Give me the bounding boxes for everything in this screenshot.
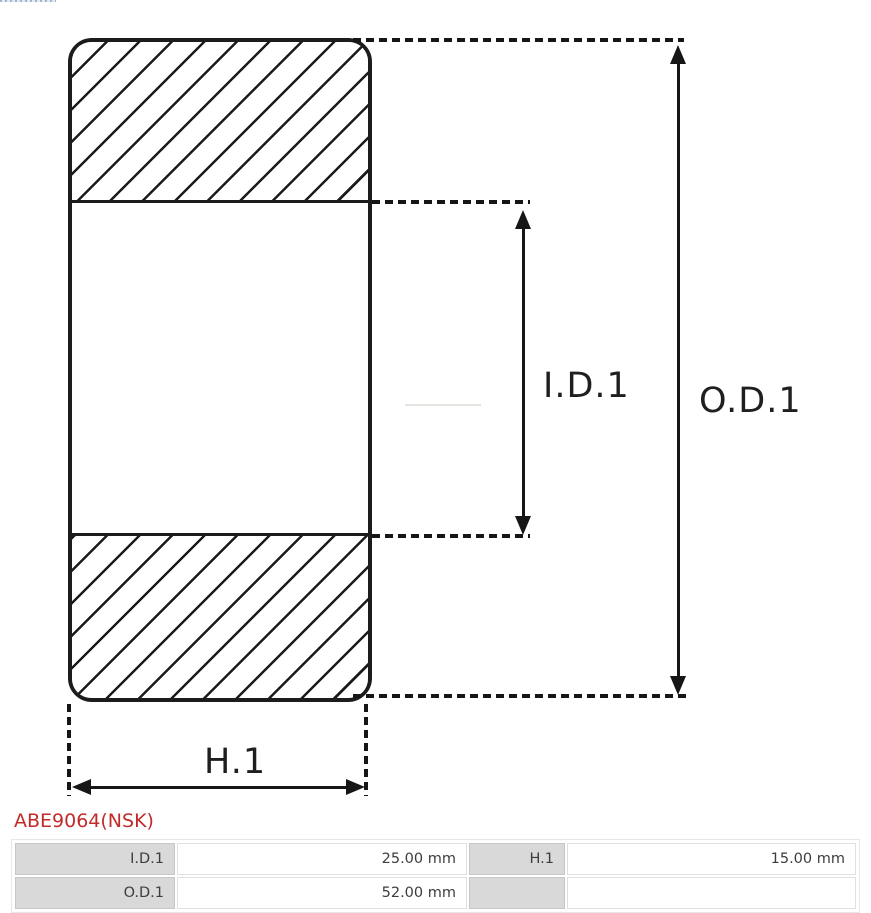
arrowhead-right-icon	[346, 779, 365, 795]
spec-label-id: I.D.1	[15, 843, 175, 875]
width-label: H.1	[204, 745, 266, 780]
arrow-shaft	[522, 226, 525, 519]
hatched-ring-section-bottom	[72, 533, 368, 698]
spec-value-h: 15.00 mm	[567, 843, 856, 875]
arrowhead-down-icon	[670, 676, 686, 695]
spec-table-container: I.D.1 25.00 mm H.1 15.00 mm O.D.1 52.00 …	[11, 839, 860, 913]
extension-line-id-bottom	[372, 534, 530, 538]
arrow-shaft	[677, 61, 680, 679]
extension-line-id-top	[372, 200, 530, 204]
dimension-arrow-outer-diameter	[670, 45, 687, 695]
extension-line-h-left	[67, 704, 71, 796]
arrow-shaft	[88, 786, 349, 789]
spec-value-empty	[567, 877, 856, 909]
part-code-link[interactable]: ABE9064(NSK)	[14, 811, 154, 832]
bearing-cross-section-drawing	[68, 38, 372, 702]
spec-label-od: O.D.1	[15, 877, 175, 909]
table-row: I.D.1 25.00 mm H.1 15.00 mm	[15, 843, 856, 875]
spec-value-od: 52.00 mm	[177, 877, 467, 909]
spec-table: I.D.1 25.00 mm H.1 15.00 mm O.D.1 52.00 …	[13, 841, 858, 911]
dimension-arrow-inner-diameter	[515, 210, 532, 535]
page: I.D.1 O.D.1 H.1 ABE9064(NSK) I.D.1 25.00…	[0, 0, 871, 913]
arrowhead-down-icon	[515, 516, 531, 535]
faint-centerline	[405, 404, 481, 406]
spec-label-empty	[469, 877, 565, 909]
spec-label-h: H.1	[469, 843, 565, 875]
extension-line-od-bottom	[353, 694, 688, 698]
inner-diameter-label: I.D.1	[543, 369, 630, 404]
table-row: O.D.1 52.00 mm	[15, 877, 856, 909]
hatched-ring-section-top	[72, 42, 368, 203]
outer-diameter-label: O.D.1	[699, 384, 802, 419]
spec-value-id: 25.00 mm	[177, 843, 467, 875]
extension-line-od-top	[353, 38, 684, 42]
cropped-text-fragment	[0, 0, 56, 2]
